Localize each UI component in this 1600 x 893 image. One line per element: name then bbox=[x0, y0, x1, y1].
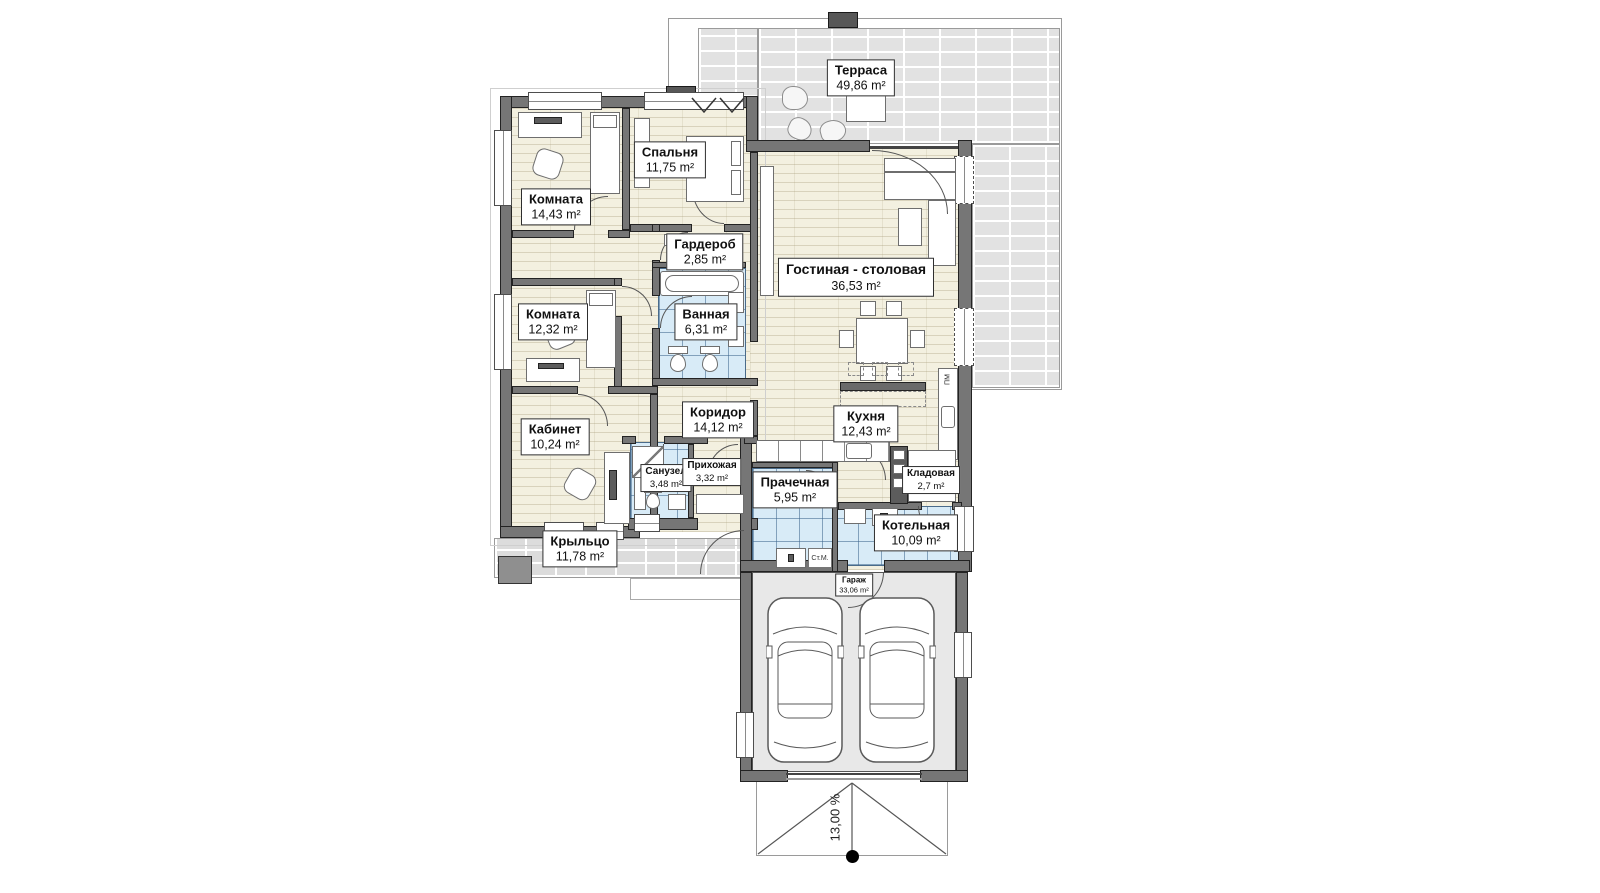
garage-door-line bbox=[786, 773, 922, 775]
wall bbox=[614, 278, 622, 286]
bar-stool bbox=[872, 362, 888, 376]
desk bbox=[604, 452, 630, 524]
room-label-terrace: Терраса 49,86 m² bbox=[827, 59, 895, 96]
toilet-bowl bbox=[646, 493, 660, 509]
wall bbox=[920, 770, 968, 782]
room-label-bathroom: Ванная 6,31 m² bbox=[674, 303, 737, 340]
window bbox=[494, 294, 512, 370]
room-label-room2: Комната 12,32 m² bbox=[518, 303, 588, 340]
window bbox=[494, 130, 512, 206]
wall bbox=[622, 436, 636, 444]
bed-pillow bbox=[589, 293, 613, 306]
bed-pillow bbox=[731, 170, 741, 195]
porch-pillar bbox=[498, 556, 532, 584]
bathtub-inner bbox=[665, 275, 739, 292]
toilet-bowl bbox=[670, 354, 686, 372]
floor-plan: ПМ Ст.М. 13,00 % Терраса bbox=[0, 0, 1600, 893]
wall bbox=[750, 152, 758, 342]
window bbox=[736, 712, 754, 758]
dishwasher-label: ПМ bbox=[945, 370, 952, 390]
window bbox=[528, 92, 602, 110]
car bbox=[766, 596, 844, 764]
bed-pillow bbox=[593, 115, 617, 128]
dining-table bbox=[856, 318, 908, 364]
washer-door bbox=[788, 554, 794, 562]
room-label-hall: Прихожая 3,32 m² bbox=[682, 458, 741, 486]
wall bbox=[884, 560, 970, 572]
kitchen-island-counter bbox=[840, 382, 926, 391]
washer-label-box: Ст.М. bbox=[808, 548, 832, 568]
dining-chair bbox=[839, 330, 854, 348]
sink bbox=[668, 494, 686, 510]
wall bbox=[512, 230, 574, 238]
room-label-living: Гостиная - столовая 36,53 m² bbox=[778, 258, 934, 297]
desk bbox=[526, 358, 580, 382]
bar-stool bbox=[898, 362, 914, 376]
wall bbox=[652, 224, 660, 232]
wall bbox=[512, 278, 622, 286]
wall bbox=[512, 386, 578, 394]
hall-closet bbox=[696, 494, 744, 514]
boiler-sink bbox=[844, 508, 866, 524]
sliding-door-line bbox=[870, 146, 958, 149]
window bbox=[634, 514, 660, 532]
slope-label: 13,00 % bbox=[828, 773, 843, 863]
room-label-kitchen: Кухня 12,43 m² bbox=[833, 405, 898, 442]
oven bbox=[893, 450, 905, 460]
wall bbox=[740, 770, 788, 782]
dining-chair bbox=[860, 301, 876, 316]
wall bbox=[608, 230, 630, 238]
porch-step bbox=[630, 578, 746, 600]
chimney-block bbox=[828, 12, 858, 28]
room-label-bedroom: Спальня 11,75 m² bbox=[634, 141, 706, 178]
dining-chair bbox=[886, 301, 902, 316]
garage-door-line bbox=[786, 778, 922, 780]
stone-decor bbox=[782, 86, 808, 110]
wall bbox=[752, 462, 838, 468]
terrace-paving bbox=[972, 144, 1060, 388]
desk-monitor bbox=[534, 117, 562, 124]
bed-pillow bbox=[731, 141, 741, 166]
room-label-laundry: Прачечная 5,95 m² bbox=[753, 471, 838, 508]
wall bbox=[652, 328, 660, 384]
kitchen-sink bbox=[846, 443, 872, 459]
car bbox=[858, 596, 936, 764]
desk-monitor bbox=[538, 363, 564, 369]
tv-bench bbox=[760, 166, 774, 296]
room-label-garage: Гараж 33,06 m² bbox=[835, 574, 873, 597]
window bbox=[954, 632, 972, 678]
room-label-porch: Крыльцо 11,78 m² bbox=[542, 530, 617, 567]
room-label-wardrobe: Гардероб 2,85 m² bbox=[666, 233, 743, 270]
room-label-office: Кабинет 10,24 m² bbox=[521, 418, 590, 455]
driveway-slope-lines bbox=[756, 782, 948, 856]
room-label-pantry: Кладовая 2,7 m² bbox=[902, 466, 960, 494]
wall bbox=[630, 224, 692, 232]
room-label-boiler: Котельная 10,09 m² bbox=[874, 514, 958, 551]
wall bbox=[622, 108, 630, 230]
wall bbox=[652, 378, 758, 386]
kitchen-sink bbox=[941, 406, 955, 428]
corner-window-marks bbox=[690, 96, 750, 116]
window bbox=[954, 156, 974, 204]
wall bbox=[746, 140, 870, 152]
toilet-tank bbox=[668, 346, 688, 354]
toilet-bowl bbox=[702, 354, 718, 372]
desk-monitor bbox=[609, 470, 617, 500]
room-label-room1: Комната 14,43 m² bbox=[521, 188, 591, 225]
bar-stool bbox=[848, 362, 864, 376]
desk bbox=[518, 112, 582, 138]
toilet-tank bbox=[700, 346, 720, 354]
slope-reference-dot bbox=[846, 850, 859, 863]
room-label-corridor: Коридор 14,12 m² bbox=[682, 401, 754, 438]
window bbox=[954, 308, 974, 366]
dining-chair bbox=[910, 330, 925, 348]
wall bbox=[608, 386, 658, 394]
